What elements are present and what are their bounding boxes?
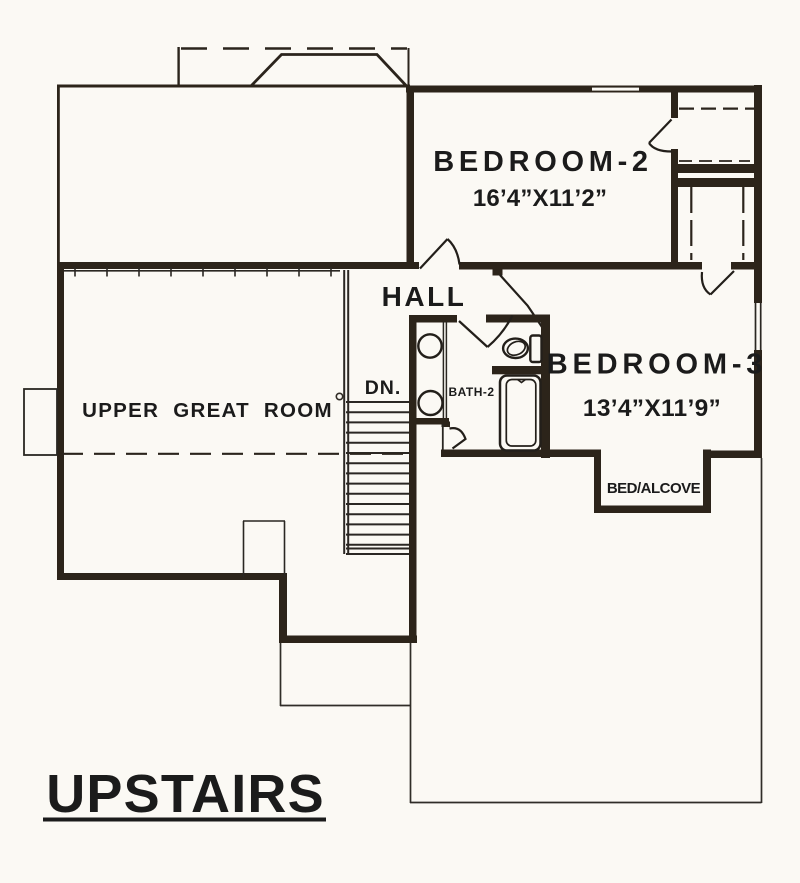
svg-text:13’4”X11’9”: 13’4”X11’9” xyxy=(583,395,721,422)
svg-text:BED/ALCOVE: BED/ALCOVE xyxy=(607,480,701,497)
svg-text:BATH-2: BATH-2 xyxy=(448,385,494,399)
svg-text:BEDROOM-2: BEDROOM-2 xyxy=(433,146,653,178)
svg-text:16’4”X11’2”: 16’4”X11’2” xyxy=(473,185,607,212)
svg-text:UPPER GREAT ROOM: UPPER GREAT ROOM xyxy=(82,399,333,422)
svg-text:BEDROOM-3: BEDROOM-3 xyxy=(547,349,767,381)
svg-text:UPSTAIRS: UPSTAIRS xyxy=(46,764,325,824)
svg-text:HALL: HALL xyxy=(382,281,467,312)
svg-text:DN.: DN. xyxy=(365,377,402,399)
